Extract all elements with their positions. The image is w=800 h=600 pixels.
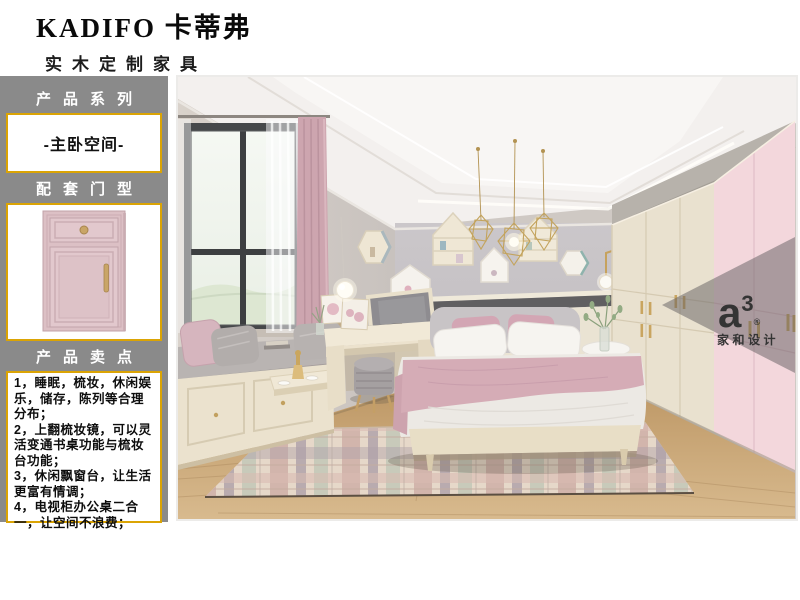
sidebar: 产品系列 -主卧空间- 配套门型 产品卖点 1，睡眠，梳妆，休闲娱乐，储存，陈列…: [0, 76, 168, 522]
drawer-knob: [80, 226, 88, 234]
bed-frame: [409, 425, 641, 455]
series-value: -主卧空间-: [44, 131, 125, 155]
cabinet-door-image: [38, 209, 130, 335]
selling-point-item: 1，睡眠，梳妆，休闲娱乐，储存，陈列等合理分布；: [14, 376, 154, 423]
selling-points-box: 1，睡眠，梳妆，休闲娱乐，储存，陈列等合理分布； 2，上翻梳妆镜，可以灵活变通书…: [6, 371, 162, 523]
door-handle: [104, 264, 109, 292]
section-title-selling-points: 产品卖点: [0, 346, 168, 367]
vanity-stool: [350, 357, 398, 413]
hexagon-shelf: [358, 231, 390, 263]
selling-point-item: 2，上翻梳妆镜，可以灵活变通书桌功能与梳妆台功能；: [14, 423, 154, 470]
hexagon-shelf: [560, 251, 588, 275]
watermark-studio-name: 家和设计: [717, 332, 779, 347]
selling-point-item: 4，电视柜办公桌二合一，让空间不浪费；: [14, 500, 154, 531]
brand-subtitle: 实木定制家具: [45, 50, 252, 75]
series-value-box: -主卧空间-: [6, 113, 162, 173]
section-title-door: 配套门型: [0, 178, 168, 199]
brand-title: KADIFO 卡蒂弗: [36, 6, 252, 45]
selling-point-item: 3，休闲飘窗台，让生活更富有情调；: [14, 469, 154, 500]
section-title-series: 产品系列: [0, 88, 168, 109]
page-header: KADIFO 卡蒂弗 实木定制家具: [36, 6, 252, 75]
door-image-box: [6, 203, 162, 341]
bedroom-photo: a3® 家和设计: [176, 75, 798, 521]
